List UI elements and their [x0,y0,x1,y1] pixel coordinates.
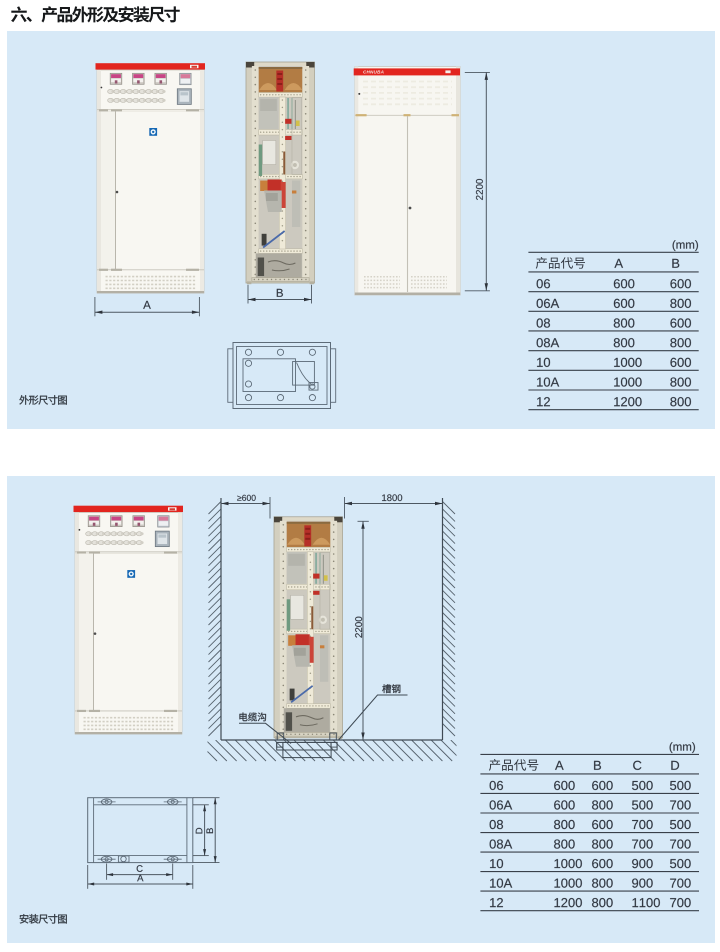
svg-text:CHNUBA: CHNUBA [363,70,384,75]
